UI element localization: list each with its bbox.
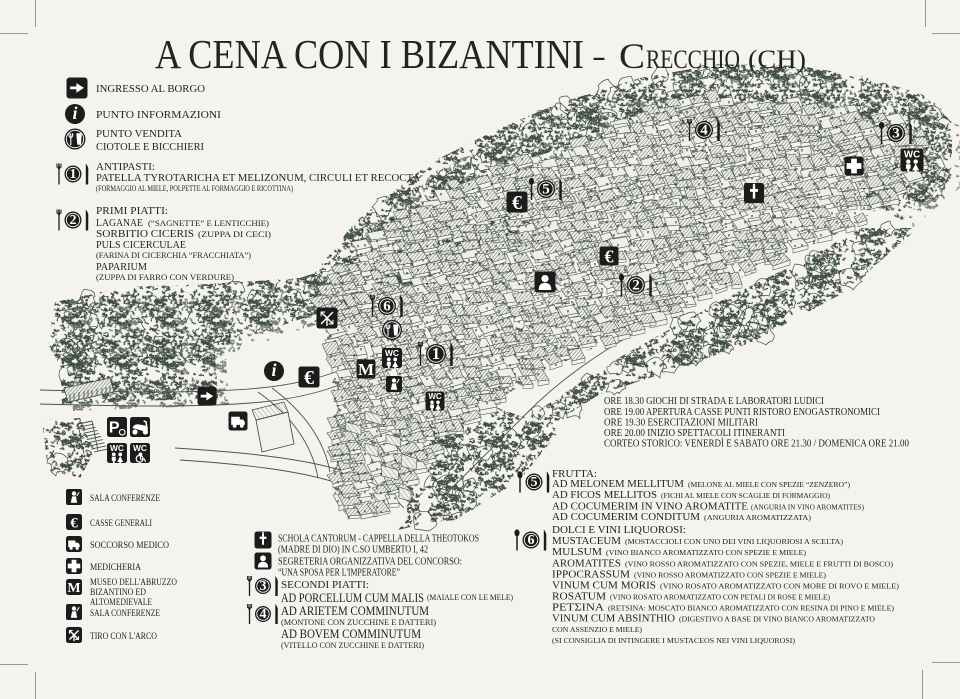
svg-text:MUSEO DELL'ABRUZZO: MUSEO DELL'ABRUZZO bbox=[90, 578, 177, 588]
svg-text:A CENA CON I BIZANTINI: A CENA CON I BIZANTINI bbox=[155, 31, 584, 77]
svg-text:4: 4 bbox=[260, 607, 267, 622]
svg-text:SOCCORSO MEDICO: SOCCORSO MEDICO bbox=[90, 541, 169, 551]
svg-text:3: 3 bbox=[260, 579, 267, 594]
svg-text:4: 4 bbox=[700, 123, 708, 139]
svg-text:RECCHIO: RECCHIO bbox=[646, 45, 740, 74]
svg-text:ORE 20.00 INIZIO SPETTACOLI IT: ORE 20.00 INIZIO SPETTACOLI ITINERANTI bbox=[604, 428, 785, 439]
svg-text:WC: WC bbox=[133, 443, 147, 453]
svg-text:PETΣINA: PETΣINA bbox=[552, 603, 604, 614]
svg-text:PAPARIUM: PAPARIUM bbox=[96, 262, 148, 273]
svg-text:(VITELLO CON ZUCCHINE E DATTER: (VITELLO CON ZUCCHINE E DATTERI) bbox=[281, 640, 424, 650]
svg-text:ALTOMEDIEVALE: ALTOMEDIEVALE bbox=[90, 598, 152, 608]
svg-text:SORBITIO CICERIS: SORBITIO CICERIS bbox=[96, 229, 194, 240]
svg-text:i: i bbox=[271, 360, 276, 380]
svg-text:5: 5 bbox=[542, 182, 550, 198]
svg-text:“UNA SPOSA PER L'IMPERATORE”: “UNA SPOSA PER L'IMPERATORE” bbox=[278, 568, 400, 579]
svg-text:€: € bbox=[70, 515, 78, 531]
svg-text:VINUM CUM ABSINTHIO: VINUM CUM ABSINTHIO bbox=[552, 614, 675, 625]
svg-text:P: P bbox=[109, 420, 120, 437]
svg-text:WC: WC bbox=[110, 443, 124, 453]
svg-text:AD COCUMERIM CONDITUM: AD COCUMERIM CONDITUM bbox=[552, 512, 701, 523]
svg-text:AD ARIETEM COMMINUTUM: AD ARIETEM COMMINUTUM bbox=[281, 604, 429, 618]
svg-text:PULS CICERCULAE: PULS CICERCULAE bbox=[96, 240, 186, 251]
svg-text:PATELLA TYROTARICHA ET MELIZON: PATELLA TYROTARICHA ET MELIZONUM, CIRCUL… bbox=[96, 173, 420, 184]
svg-text:CORTEO STORICO: VENERDÌ E SABA: CORTEO STORICO: VENERDÌ E SABATO ORE 21.… bbox=[604, 438, 909, 450]
svg-text:IPPOCRASSUM: IPPOCRASSUM bbox=[552, 570, 631, 581]
svg-text:€: € bbox=[304, 367, 314, 389]
svg-text:M: M bbox=[67, 581, 80, 596]
svg-text:AD BOVEM COMMINUTUM: AD BOVEM COMMINUTUM bbox=[281, 627, 421, 641]
svg-text:(MONTONE CON ZUCCHINE E DATTER: (MONTONE CON ZUCCHINE E DATTERI) bbox=[281, 617, 436, 627]
svg-text:C: C bbox=[619, 36, 645, 76]
svg-text:3: 3 bbox=[892, 126, 900, 142]
svg-text:AD PORCELLUM CUM MALIS: AD PORCELLUM CUM MALIS bbox=[281, 591, 424, 605]
svg-text:(MELONE AL MIELE CON SPEZIE “Z: (MELONE AL MIELE CON SPEZIE “ZENZERO”) bbox=[688, 480, 851, 489]
svg-text:(SI CONSIGLIA DI INTINGERE I M: (SI CONSIGLIA DI INTINGERE I MUSTACEOS N… bbox=[552, 636, 796, 645]
svg-text:(ANGURIA AROMATIZZATA): (ANGURIA AROMATIZZATA) bbox=[704, 513, 812, 522]
svg-text:€: € bbox=[512, 192, 522, 214]
svg-text:AD FICOS MELLITOS: AD FICOS MELLITOS bbox=[552, 490, 657, 501]
svg-text:PUNTO INFORMAZIONI: PUNTO INFORMAZIONI bbox=[96, 110, 222, 121]
svg-text:SALA CONFERENZE: SALA CONFERENZE bbox=[90, 609, 160, 619]
svg-text:M: M bbox=[358, 360, 374, 379]
svg-text:SEGRETERIA ORGANIZZATIVA DEL C: SEGRETERIA ORGANIZZATIVA DEL CONCORSO: bbox=[278, 557, 462, 568]
svg-text:TIRO CON L'ARCO: TIRO CON L'ARCO bbox=[90, 632, 157, 642]
svg-text:ROSATUM: ROSATUM bbox=[552, 592, 607, 603]
svg-text:(ZUPPA DI FARRO CON VERDURE): (ZUPPA DI FARRO CON VERDURE) bbox=[96, 273, 234, 282]
svg-text:BIZANTINO ED: BIZANTINO ED bbox=[90, 588, 146, 598]
svg-text:SALA CONFERENZE: SALA CONFERENZE bbox=[90, 494, 160, 504]
svg-text:€: € bbox=[605, 246, 614, 266]
svg-text:PUNTO VENDITA: PUNTO VENDITA bbox=[96, 129, 182, 140]
svg-text:1: 1 bbox=[432, 344, 441, 363]
svg-text:5: 5 bbox=[531, 475, 538, 490]
svg-text:ORE 18.30 GIOCHI DI STRADA E L: ORE 18.30 GIOCHI DI STRADA E LABORATORI … bbox=[604, 396, 824, 407]
svg-text:MEDICHERIA: MEDICHERIA bbox=[90, 563, 141, 573]
svg-text:ORE 19.30 ESERCITAZIONI MILITA: ORE 19.30 ESERCITAZIONI MILITARI bbox=[604, 418, 758, 429]
svg-text:MUSTACEUM: MUSTACEUM bbox=[552, 536, 622, 547]
svg-text:(FICHI AL MIELE CON SCAGLIE DI: (FICHI AL MIELE CON SCAGLIE DI FORMAGGIO… bbox=[661, 491, 830, 500]
svg-text:ORE 19.00 APERTURA CASSE PUNTI: ORE 19.00 APERTURA CASSE PUNTI RISTORO E… bbox=[604, 407, 880, 418]
svg-text:AROMATITES: AROMATITES bbox=[552, 559, 621, 570]
svg-text:(ZUPPA DI CECI): (ZUPPA DI CECI) bbox=[198, 230, 271, 239]
svg-text:i: i bbox=[72, 103, 77, 123]
svg-text:CASSE GENERALI: CASSE GENERALI bbox=[90, 519, 152, 529]
svg-text:SECONDI PIATTI:: SECONDI PIATTI: bbox=[281, 579, 369, 591]
svg-text:VINUM CUM MORIS: VINUM CUM MORIS bbox=[552, 581, 656, 592]
svg-text:(DIGESTIVO A BASE DI VINO BIAN: (DIGESTIVO A BASE DI VINO BIANCO AROMATI… bbox=[679, 615, 876, 624]
svg-text:(VINO ROSSO AROMATIZZATO CON S: (VINO ROSSO AROMATIZZATO CON SPEZIE E MI… bbox=[634, 571, 827, 580]
svg-text:(CH): (CH) bbox=[748, 45, 806, 74]
svg-text:LAGANAE: LAGANAE bbox=[96, 218, 143, 229]
svg-text:1: 1 bbox=[70, 167, 77, 182]
svg-text:(MOSTACCIOLI CON UNO DEI VINI: (MOSTACCIOLI CON UNO DEI VINI LIQUORIOSI… bbox=[625, 537, 844, 546]
svg-text:(ANGURIA IN VINO AROMATITES): (ANGURIA IN VINO AROMATITES) bbox=[751, 503, 864, 512]
svg-text:DOLCI E VINI LIQUOROSI:: DOLCI E VINI LIQUOROSI: bbox=[552, 524, 686, 536]
svg-text:(FARINA DI CICERCHIA “FRACCHIA: (FARINA DI CICERCHIA “FRACCHIATA”) bbox=[96, 251, 251, 260]
svg-text:WC: WC bbox=[904, 150, 920, 161]
svg-text:6: 6 bbox=[528, 533, 535, 548]
svg-text:CIOTOLE E BICCHIERI: CIOTOLE E BICCHIERI bbox=[96, 142, 204, 153]
svg-text:WC: WC bbox=[428, 392, 442, 401]
svg-text:-: - bbox=[592, 40, 606, 73]
svg-text:(“SAGNETTE” E LENTICCHIE): (“SAGNETTE” E LENTICCHIE) bbox=[148, 219, 269, 228]
svg-text:(VINO ROSATO AROMATIZZATO CON: (VINO ROSATO AROMATIZZATO CON PETALI DI … bbox=[610, 593, 831, 602]
svg-text:6: 6 bbox=[383, 299, 391, 315]
svg-text:SCHOLA CANTORUM - CAPPELLA DEL: SCHOLA CANTORUM - CAPPELLA DELLA THEOTOK… bbox=[278, 534, 479, 545]
svg-text:CON ASSENZIO E MIELE): CON ASSENZIO E MIELE) bbox=[552, 625, 643, 634]
svg-text:PRIMI PIATTI:: PRIMI PIATTI: bbox=[96, 206, 168, 217]
svg-text:(RETSINA: MOSCATO BIANCO AROMA: (RETSINA: MOSCATO BIANCO AROMATIZZATO CO… bbox=[608, 604, 895, 613]
svg-text:(VINO ROSATO AROMATIZZATO CON: (VINO ROSATO AROMATIZZATO CON MORE DI RO… bbox=[660, 582, 900, 591]
svg-text:(VINO BIANCO AROMATIZZATO CON: (VINO BIANCO AROMATIZZATO CON SPEZIE E M… bbox=[606, 548, 807, 557]
svg-text:AD COCUMERIM IN VINO AROMATITE: AD COCUMERIM IN VINO AROMATITE bbox=[552, 502, 748, 513]
svg-text:(MAIALE CON LE MELE): (MAIALE CON LE MELE) bbox=[427, 592, 513, 602]
svg-text:(FORMAGGIO AL MIELE, POLPETTE: (FORMAGGIO AL MIELE, POLPETTE AL FORMAGG… bbox=[96, 184, 293, 193]
svg-text:MULSUM: MULSUM bbox=[552, 547, 603, 558]
svg-text:2: 2 bbox=[632, 278, 640, 294]
svg-text:(MADRE DI DIO) IN C.SO UMBERTO: (MADRE DI DIO) IN C.SO UMBERTO I, 42 bbox=[278, 545, 428, 556]
svg-text:(VINO ROSSO AROMATIZZATO CON S: (VINO ROSSO AROMATIZZATO CON SPEZIE, MIE… bbox=[625, 560, 894, 569]
svg-text:2: 2 bbox=[70, 213, 77, 228]
svg-text:ANTIPASTI:: ANTIPASTI: bbox=[96, 162, 155, 173]
svg-text:INGRESSO AL BORGO: INGRESSO AL BORGO bbox=[96, 84, 205, 95]
svg-text:WC: WC bbox=[385, 348, 399, 358]
svg-text:AD MELONEM MELLITUM: AD MELONEM MELLITUM bbox=[552, 479, 685, 490]
